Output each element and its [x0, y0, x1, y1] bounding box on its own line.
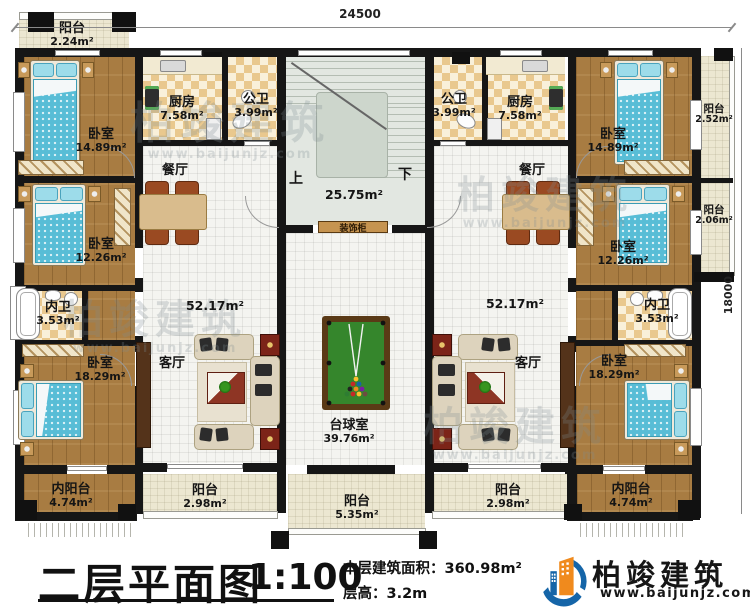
- corner-table: [432, 334, 452, 356]
- column: [452, 52, 470, 64]
- cushion: [438, 364, 455, 376]
- room-label-bedroom-tl: 卧室14.89m²: [66, 128, 136, 154]
- room-label-bedroom-ml: 卧室12.26m²: [66, 238, 136, 264]
- wall-bottom: [243, 463, 286, 472]
- cushion: [215, 337, 228, 351]
- nightstand: [600, 62, 612, 78]
- cushion: [255, 384, 272, 396]
- column: [678, 500, 700, 520]
- parapet: [288, 528, 426, 535]
- cushion: [497, 337, 510, 351]
- wall-int: [568, 48, 576, 178]
- room-label-billiard: 台球室39.76m²: [313, 419, 385, 445]
- cushion: [199, 427, 213, 442]
- decor-cabinet: 装饰柜: [318, 221, 388, 233]
- room-label-hall-area-l: 52.17m²: [178, 299, 252, 313]
- room-label-bath-public-l: 公卫3.99m²: [221, 93, 291, 119]
- column: [118, 504, 136, 520]
- bed: [624, 380, 690, 440]
- cushion: [438, 384, 455, 396]
- nightstand: [20, 364, 34, 378]
- door-gap: [244, 141, 270, 146]
- room-label-dining-l: 餐厅: [145, 164, 205, 178]
- tv-cabinet: [560, 342, 575, 448]
- cushion: [497, 427, 510, 441]
- room-label-inner-balcony-l: 内阳台4.74m²: [33, 483, 109, 509]
- nightstand: [674, 442, 688, 456]
- wall-bottom: [425, 463, 468, 472]
- room-label-bedroom-br: 卧室18.29m²: [579, 355, 649, 381]
- company-logo-icon: [540, 552, 588, 608]
- room-label-hall-area-r: 52.17m²: [478, 297, 552, 311]
- parapet: [143, 511, 278, 519]
- nightstand: [88, 186, 101, 202]
- window: [13, 92, 25, 152]
- sliding-door: [468, 464, 541, 469]
- column: [271, 531, 289, 549]
- room-label-kitchen-l: 厨房7.58m²: [147, 96, 217, 122]
- window: [500, 50, 542, 56]
- kitchen-sink: [160, 60, 186, 72]
- sliding-door: [603, 466, 645, 471]
- cushion: [199, 337, 213, 352]
- corner-table: [432, 428, 452, 450]
- room-label-living-l: 客厅: [142, 357, 202, 371]
- nightstand: [602, 186, 615, 202]
- wall-int: [277, 225, 313, 233]
- plant: [219, 381, 231, 393]
- nightstand: [18, 186, 31, 202]
- parapet: [729, 56, 735, 276]
- balcony-mid-right-floor: [701, 183, 729, 276]
- floor-area-note: 本层建筑面积：360.98m²: [343, 557, 522, 578]
- wardrobe: [577, 188, 594, 246]
- room-label-balcony-tl: 阳台2.24m²: [37, 22, 107, 48]
- corner-table: [260, 334, 280, 356]
- window: [608, 50, 653, 56]
- stair-hall-area: 25.75m²: [325, 188, 383, 202]
- cushion: [481, 337, 495, 352]
- wardrobe: [18, 160, 84, 175]
- cushion: [215, 427, 228, 441]
- window: [690, 388, 702, 446]
- drawing-title: 二层平面图: [38, 551, 263, 612]
- ground-hatch: [580, 523, 686, 537]
- billiard-table: [322, 316, 390, 410]
- wall-bottom: [541, 463, 568, 472]
- corridor-left-floor: [88, 290, 135, 340]
- parapet: [432, 511, 567, 519]
- bed: [18, 380, 84, 440]
- nightstand: [18, 62, 30, 78]
- room-label-bath-inner-l: 内卫3.53m²: [27, 301, 89, 327]
- room-label-bedroom-tr: 卧室14.89m²: [578, 128, 648, 154]
- dimension-right-value: 18000: [722, 276, 735, 314]
- room-label-bedroom-mr: 卧室12.26m²: [588, 241, 658, 267]
- room-label-living-r: 客厅: [498, 357, 558, 371]
- window: [13, 208, 25, 263]
- kitchen-sink: [522, 60, 548, 72]
- nightstand: [672, 186, 685, 202]
- nightstand: [20, 442, 34, 456]
- room-label-balcony-br: 阳台2.98m²: [472, 484, 544, 510]
- window: [160, 50, 202, 56]
- dining-table: [139, 194, 207, 230]
- room-label-balcony-bc: 阳台5.35m²: [321, 495, 393, 521]
- plant: [479, 381, 491, 393]
- sliding-door: [167, 464, 243, 469]
- cushion: [481, 427, 495, 442]
- column: [714, 48, 733, 61]
- title-underline: [38, 599, 334, 602]
- room-label-inner-balcony-r: 内阳台4.74m²: [593, 483, 669, 509]
- room-label-kitchen-r: 厨房7.58m²: [485, 96, 555, 122]
- dimension-top-value: 24500: [325, 7, 395, 21]
- stair-up-label: 上: [289, 168, 303, 188]
- room-label-bath-inner-r: 内卫3.53m²: [626, 299, 688, 325]
- room-label-bedroom-bl: 卧室18.29m²: [65, 357, 135, 383]
- dining-table: [502, 194, 570, 230]
- dimension-tick: [728, 23, 737, 33]
- door-gap: [440, 141, 466, 146]
- column: [419, 531, 437, 549]
- cushion: [255, 364, 272, 376]
- room-label-balcony-tr: 阳台2.52m²: [694, 104, 734, 126]
- ground-hatch: [28, 523, 134, 537]
- column: [564, 504, 582, 520]
- wall-bottom: [645, 465, 693, 474]
- room-label-bath-public-r: 公卫3.99m²: [419, 93, 489, 119]
- dimension-line-top: [15, 27, 733, 28]
- company-logo-url: www.baijunjz.com: [600, 586, 750, 601]
- stair-down-label: 下: [398, 164, 412, 184]
- column: [112, 12, 136, 32]
- floor-plan-canvas: 上 下 25.75m² 装饰柜: [0, 0, 750, 612]
- dimension-line-right: [741, 48, 742, 514]
- wall-bottom: [567, 512, 693, 521]
- wall-bottom: [135, 472, 143, 514]
- wardrobe: [624, 160, 690, 175]
- nightstand: [82, 62, 94, 78]
- floor-height-note: 层高：3.2m: [343, 582, 427, 603]
- wall-int: [135, 48, 143, 178]
- nightstand: [666, 62, 678, 78]
- room-label-balcony-mr: 阳台2.06m²: [694, 205, 734, 227]
- corner-table: [260, 428, 280, 450]
- wardrobe: [22, 344, 84, 357]
- window: [55, 50, 100, 56]
- wall-int: [701, 178, 733, 183]
- room-label-dining-r: 餐厅: [502, 164, 562, 178]
- sliding-door: [67, 466, 107, 471]
- wall-bottom: [143, 463, 167, 472]
- room-label-balcony-bl: 阳台2.98m²: [170, 484, 240, 510]
- wall-int: [307, 465, 395, 474]
- wall-int: [612, 290, 618, 340]
- nightstand: [674, 364, 688, 378]
- window: [298, 50, 410, 56]
